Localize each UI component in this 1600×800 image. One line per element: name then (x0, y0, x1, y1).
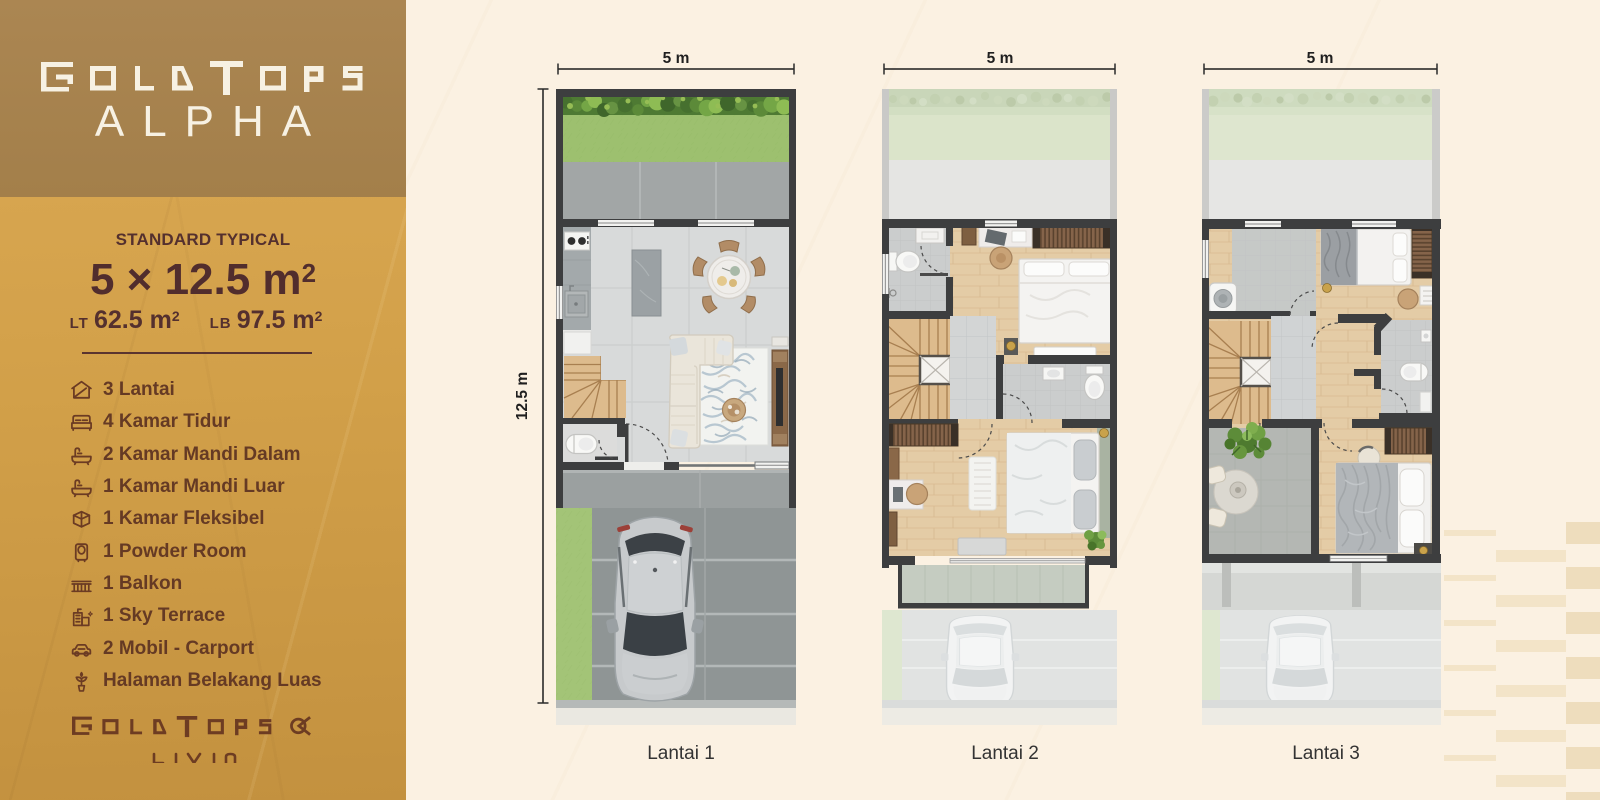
svg-text:12.5 m: 12.5 m (514, 372, 531, 420)
svg-text:Lantai 3: Lantai 3 (1292, 743, 1360, 764)
svg-text:Lantai 2: Lantai 2 (971, 743, 1039, 764)
svg-text:5 m: 5 m (1307, 50, 1334, 67)
svg-text:5 m: 5 m (987, 50, 1014, 67)
svg-text:5 m: 5 m (663, 50, 690, 67)
svg-text:Lantai 1: Lantai 1 (647, 743, 715, 764)
